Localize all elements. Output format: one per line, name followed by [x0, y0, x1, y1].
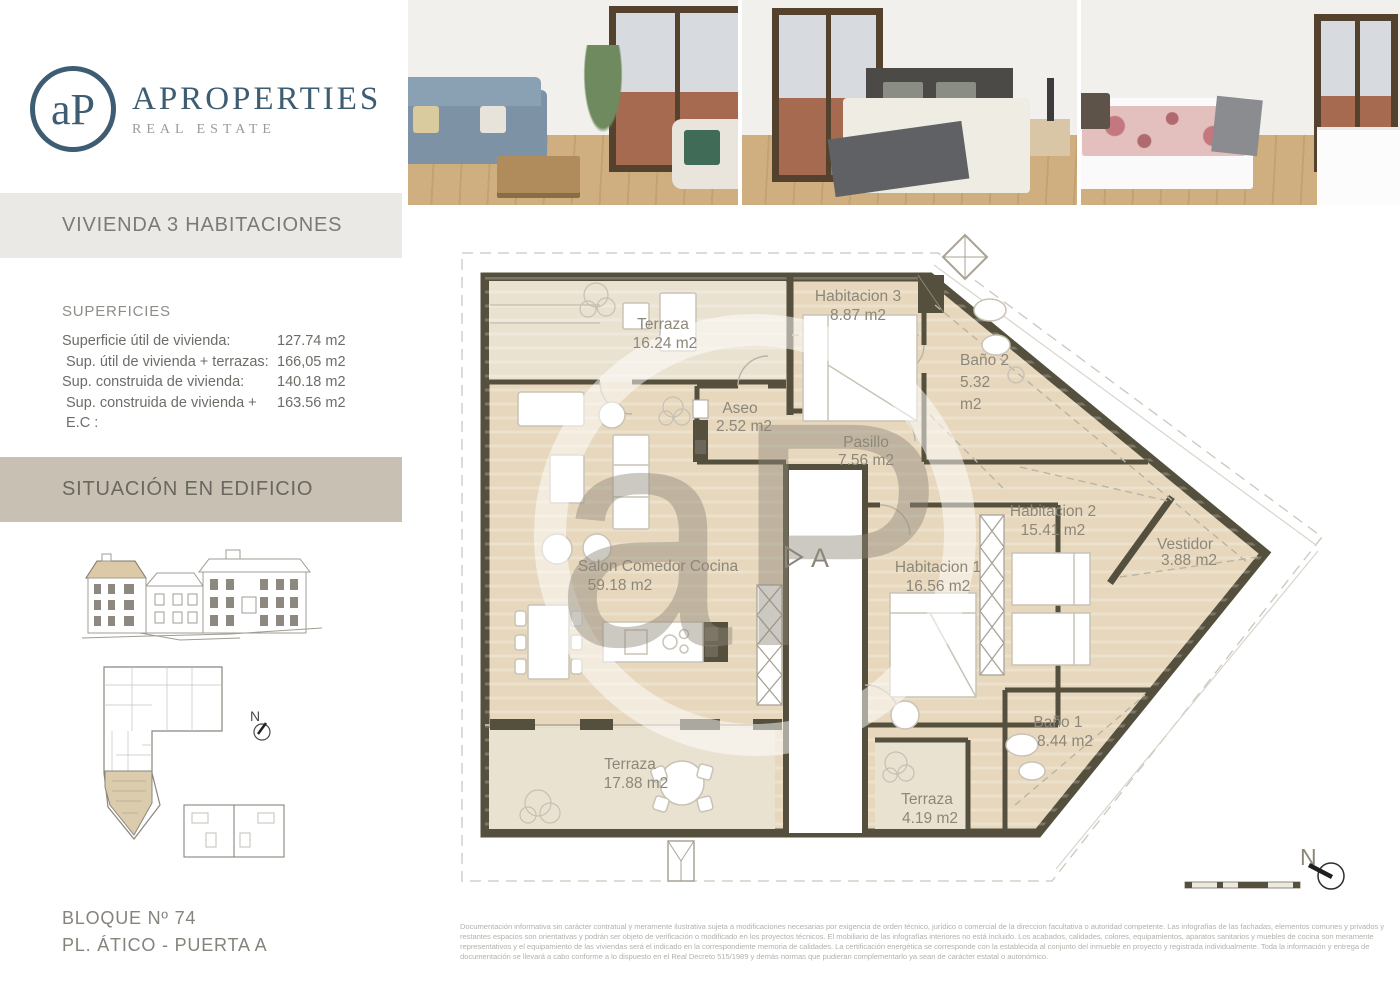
building-elevation-drawing	[80, 548, 335, 653]
room-area-unit: m2	[960, 396, 982, 413]
room-area: 16.56 m2	[906, 578, 971, 595]
room-label: Aseo	[722, 400, 757, 417]
disclaimer-line: documentación se llevará a cabo conforme…	[460, 952, 1396, 962]
brand-name: APROPERTIES	[132, 81, 381, 118]
room-area: 8.87 m2	[830, 307, 886, 324]
scale-bar	[1185, 882, 1300, 888]
room-label: Baño 2	[960, 352, 1009, 369]
room-area: 59.18 m2	[588, 577, 653, 594]
plant	[580, 45, 626, 143]
room-area: 15.41 m2	[1021, 522, 1086, 539]
row-label: Superficie útil de vivienda:	[62, 331, 275, 352]
row-value: 127.74 m2	[277, 331, 346, 352]
room-area: 2.52 m2	[716, 418, 772, 435]
room-label: Terraza	[901, 791, 953, 808]
room-area: 8.44 m2	[1037, 733, 1093, 750]
room-area: 7.56 m2	[838, 452, 894, 469]
room-label: Habitacion 1	[895, 559, 981, 576]
disclaimer-line: Documentación informativa sin carácter c…	[460, 922, 1396, 932]
lamp	[1047, 78, 1054, 121]
room-area: 16.24 m2	[633, 335, 698, 352]
table-row: Sup. construida de vivienda: 140.18 m2	[62, 372, 352, 393]
block-line2: PL. ÁTICO - PUERTA A	[62, 932, 267, 959]
situation-compass-label: N	[250, 708, 260, 724]
photo-strip	[408, 0, 1400, 205]
room-label: Baño 1	[1033, 714, 1082, 731]
disclaimer-line: representativos y el equipamiento de las…	[460, 942, 1396, 952]
photo-living-room	[408, 0, 738, 205]
section-band-vivienda: VIVIENDA 3 HABITACIONES	[0, 193, 402, 258]
block-line1: BLOQUE Nº 74	[62, 905, 267, 932]
superficies-table: Superficie útil de vivienda: 127.74 m2 S…	[62, 331, 352, 434]
section-title: VIVIENDA 3 HABITACIONES	[0, 214, 342, 237]
armchair	[672, 119, 738, 189]
table-row: Superficie útil de vivienda: 127.74 m2	[62, 331, 352, 352]
compass: N	[1300, 844, 1344, 889]
room-label: Terraza	[604, 756, 656, 773]
section-band-situacion: SITUACIÓN EN EDIFICIO	[0, 457, 402, 522]
desk	[1317, 127, 1400, 205]
room-area: 5.32	[960, 374, 990, 391]
brand-monogram-icon: aP	[30, 66, 116, 152]
room-label: Habitacion 3	[815, 288, 901, 305]
sofa	[408, 90, 547, 164]
nightstand	[1030, 119, 1070, 156]
row-value: 166,05 m2	[277, 352, 346, 373]
table-row: Sup. útil de vivienda + terrazas: 166,05…	[62, 352, 352, 373]
room-area: 17.88 m2	[604, 775, 669, 792]
situation-plan-drawing: N	[72, 655, 327, 895]
legal-disclaimer: Documentación informativa sin carácter c…	[460, 922, 1396, 962]
photo-bedroom-double	[742, 0, 1077, 205]
room-label: Vestidor	[1157, 536, 1213, 553]
table-row: Sup. construida de vivienda + E.C : 163.…	[62, 393, 352, 434]
bed	[843, 98, 1031, 192]
room-label: Habitacion 2	[1010, 503, 1096, 520]
room-area: 4.19 m2	[902, 810, 958, 827]
coffee-table	[497, 156, 580, 193]
row-label: Sup. construida de vivienda + E.C :	[62, 393, 275, 434]
row-value: 163.56 m2	[277, 393, 346, 434]
room-label: Pasillo	[843, 434, 889, 451]
superficies-title: SUPERFICIES	[62, 303, 171, 320]
room-area: 3.88 m2	[1161, 552, 1217, 569]
photo-bedroom-single	[1081, 0, 1400, 205]
floor-plan: aP Terraza 16.24 m2 Habitacion 3 8.87 m2…	[460, 215, 1400, 915]
room-label: Terraza	[637, 316, 689, 333]
bed	[1081, 98, 1253, 188]
row-value: 140.18 m2	[277, 372, 346, 393]
row-label: Sup. útil de vivienda + terrazas:	[62, 352, 275, 373]
disclaimer-line: restantes espacios son orientativas y po…	[460, 932, 1396, 942]
section-title: SITUACIÓN EN EDIFICIO	[0, 478, 313, 501]
brand-tagline: REAL ESTATE	[132, 122, 381, 138]
block-title: BLOQUE Nº 74 PL. ÁTICO - PUERTA A	[62, 905, 267, 959]
room-label: Salon Comedor Cocina	[578, 558, 739, 575]
brand-logo: aP APROPERTIES REAL ESTATE	[30, 66, 381, 152]
brand-watermark: aP	[550, 330, 960, 740]
brand-monogram: aP	[51, 84, 95, 135]
section-marker-label: A	[811, 543, 829, 573]
row-label: Sup. construida de vivienda:	[62, 372, 275, 393]
